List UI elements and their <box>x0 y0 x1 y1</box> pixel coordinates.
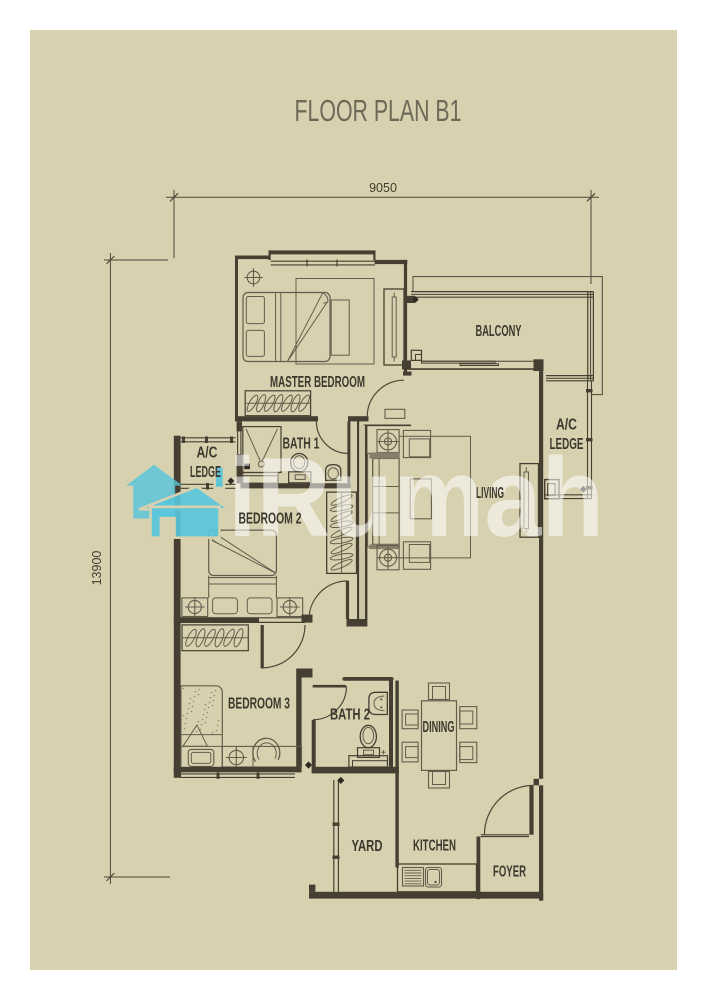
svg-text:MASTER BEDROOM: MASTER BEDROOM <box>270 374 365 391</box>
svg-text:KITCHEN: KITCHEN <box>413 838 456 855</box>
svg-text:LEDGE: LEDGE <box>550 436 584 453</box>
svg-text:YARD: YARD <box>352 838 383 855</box>
svg-text:A/C: A/C <box>556 417 577 434</box>
svg-text:LEDGE: LEDGE <box>190 464 221 481</box>
svg-text:FOYER: FOYER <box>493 864 526 881</box>
svg-text:BEDROOM 2: BEDROOM 2 <box>239 511 302 528</box>
svg-text:9050: 9050 <box>369 181 397 195</box>
svg-text:A/C: A/C <box>197 445 218 462</box>
svg-text:DINING: DINING <box>423 719 455 736</box>
svg-text:LIVING: LIVING <box>476 485 504 502</box>
svg-text:iRumah: iRumah <box>228 435 604 560</box>
svg-text:FLOOR PLAN B1: FLOOR PLAN B1 <box>295 93 462 128</box>
svg-text:BATH 2: BATH 2 <box>330 707 370 724</box>
svg-text:BEDROOM 3: BEDROOM 3 <box>228 696 290 713</box>
svg-text:BALCONY: BALCONY <box>476 323 522 340</box>
svg-text:BATH 1: BATH 1 <box>283 436 320 453</box>
svg-text:13900: 13900 <box>90 551 104 586</box>
